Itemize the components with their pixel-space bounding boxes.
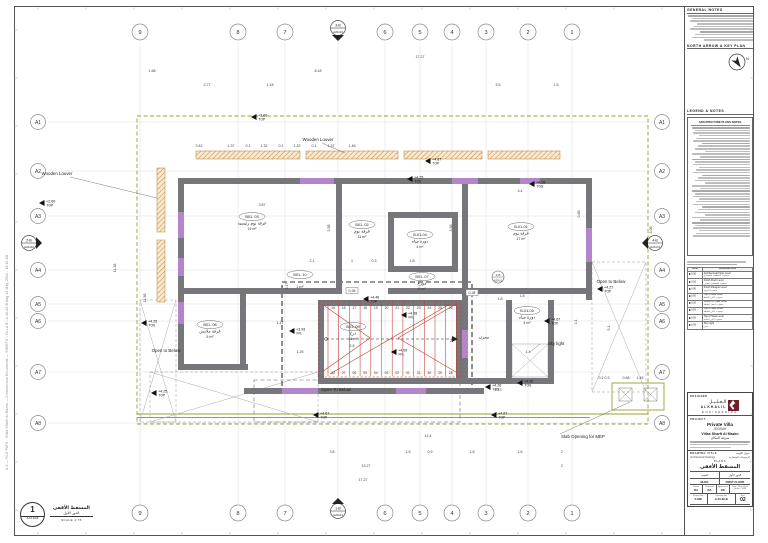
room-id: B01- 07 (415, 275, 428, 279)
wall (388, 212, 458, 218)
level-flag-icon (401, 312, 407, 318)
stair-step-number: 12 (331, 371, 335, 375)
text-line (696, 233, 749, 235)
dimension-label: 1.68 (149, 69, 156, 73)
section-marker-arrow (642, 237, 648, 249)
dimension-label: 3.1 (574, 320, 578, 325)
stair-step-number: 22 (406, 306, 410, 310)
dimension-label: 1.8 (520, 294, 525, 298)
designer-label: DESIGNER (690, 395, 708, 398)
text-line (693, 227, 750, 229)
stair-step-number: 25 (438, 306, 442, 310)
grid-bubble-label: A6 (35, 319, 41, 325)
view-ref: A-10-02-B (21, 516, 44, 521)
wall-accent (178, 212, 184, 238)
text-line (700, 31, 753, 33)
dimension-label: 3.38 (449, 225, 453, 232)
grid-bubble-label: A4 (659, 268, 665, 274)
drawing-title-arabic: المسقط الأفقي (690, 464, 750, 470)
stair-step-number: 31 (417, 371, 421, 375)
reference-tag-top: 1-B (496, 273, 501, 277)
section-marker-ref: A20-01 (333, 513, 343, 517)
text-line (696, 169, 749, 171)
room-name-ar: غرفة ملابس (199, 328, 221, 333)
wooden-louver-hatch (157, 240, 165, 302)
room-id: B01- 08 (203, 323, 216, 327)
dimension-label: 1.37 (228, 144, 235, 148)
grid-bubble-label: 1 (570, 511, 573, 517)
dimension-label: 1.18 (267, 83, 274, 87)
text-line (692, 217, 749, 219)
grid-bubble-label: 7 (283, 30, 286, 36)
text-line (693, 196, 750, 198)
room-area: 11 m² (358, 235, 368, 239)
floor-cell-ar: الدور الأول (720, 472, 750, 479)
grid-bubble-label: A1 (35, 120, 41, 126)
level-flag-icon (391, 349, 397, 355)
room-name-ar: مخزن (479, 334, 489, 339)
dimension-label: 0.88 (577, 211, 581, 218)
grid-bubble-label: A4 (35, 268, 41, 274)
view-scale: SCALE 1:75 (50, 518, 93, 522)
level-flag-icon (689, 324, 691, 326)
dimension-label: 17.27 (359, 478, 368, 482)
wall-accent (396, 388, 426, 394)
grid-bubble-label: 5 (418, 511, 421, 517)
level-suffix: TOP (499, 416, 507, 420)
text-line (705, 151, 749, 153)
stair-step-number: 21 (395, 306, 399, 310)
north-arrow-title: NORTH ARROW & KEY PLAN (687, 44, 753, 50)
grid-bubble-label: 6 (383, 511, 386, 517)
dimension-label: 1.32 (294, 144, 301, 148)
dimension-label: 2 (561, 450, 563, 454)
legend-row: 0.00Top of Steel Levelمنسوب أعلى الحديد (688, 315, 753, 322)
dimension-label: 12.4 (425, 434, 432, 438)
wooden-louver-hatch (404, 151, 482, 159)
wall-accent (178, 258, 184, 276)
view-subtitle-arabic: الدور الأول (53, 511, 90, 515)
text-line (695, 193, 749, 195)
dimension-label: 17.27 (416, 55, 425, 59)
stair-step-number: 29 (438, 371, 442, 375)
drawing-title-block: DRAWING TITLE عنوان اللوحة Architectural… (688, 451, 752, 505)
dimension-label: 1.8 (410, 259, 415, 263)
text-line (693, 132, 750, 134)
room-id: B01- 09 (346, 325, 359, 329)
drawing-category-ar: الرسومات المعمارية (729, 456, 750, 459)
legend-row: 0.00Finish Parapet Levelمنسوب الدروة (688, 286, 753, 293)
text-line (693, 140, 749, 142)
level-suffix: TOP (605, 290, 613, 294)
dimension-label: 8.18 (315, 69, 322, 73)
level-flag-icon (597, 286, 603, 292)
drawing-no-value: A-10-02-B (715, 497, 728, 501)
level-suffix: TOS (525, 384, 533, 388)
grid-bubble-label: A5 (35, 302, 41, 308)
open-below-right-label: Open to Below (597, 279, 627, 284)
dimension-label: 2.1 (310, 259, 315, 263)
logo-text: ALKHALIL (701, 405, 727, 409)
dimension-label: 0.1 (312, 144, 317, 148)
wall-accent (178, 302, 184, 324)
stair-step-number: 04 (374, 371, 378, 375)
level-suffix: TOP (47, 204, 55, 208)
view-title: 1 A-10-02-B المسقط الأفقي الدور الأول SC… (20, 497, 170, 531)
dimension-label: 2.8 (350, 344, 355, 348)
grid-bubble-label: 3 (484, 30, 487, 36)
stair-step-number: 07 (342, 371, 346, 375)
svg-text:N: N (746, 56, 749, 61)
dimension-label: 11.38 (113, 264, 117, 273)
project-block: PROJECT Private Villa JEDDAH Villas Shar… (688, 416, 752, 451)
wall (388, 266, 458, 272)
level-symbols-table: SYM.DESCRIPTION0.00Architectural Floor L… (687, 267, 753, 330)
level-suffix: TOP (159, 394, 167, 398)
legend-row: 0.00Top of Wall Levelمنسوب أعلى الحائط (688, 293, 753, 300)
stair-step-number: 18 (363, 306, 367, 310)
level-suffix: TOS (149, 324, 157, 328)
wooden-louver-hatch (196, 151, 300, 159)
stair-step-number: 24 (427, 306, 431, 310)
text-line (698, 145, 750, 147)
text-line (696, 138, 749, 140)
room-area: 5 m² (418, 287, 426, 291)
room-id: B-01-04 (413, 233, 427, 237)
level-suffix: TOP (552, 322, 560, 326)
grid-bubble-label: A3 (35, 214, 41, 220)
room-name-ar: غرفة نوم (354, 228, 371, 233)
dimension-label: 1.6 (518, 450, 523, 454)
dimension-label: 1.47 (277, 321, 284, 325)
room-area: 16 m² (348, 337, 358, 341)
drawing-title-label-ar: عنوان اللوحة (736, 452, 750, 455)
dimension-label: 11.38 (143, 294, 147, 303)
stair-step-number: 27 (450, 339, 454, 343)
alkhalil-logo-icon (728, 400, 739, 411)
level-flag-icon (39, 200, 45, 206)
grid-bubble-label: 5 (418, 30, 421, 36)
stair-step-number: 03 (385, 371, 389, 375)
wall (506, 300, 512, 384)
general-notes-title: GENERAL NOTES (687, 8, 753, 14)
level-flag-icon (689, 281, 691, 283)
level-flag-icon (689, 295, 691, 297)
text-line (693, 235, 749, 237)
text-line (693, 172, 749, 174)
open-below-bottom-label: Open To Below (321, 387, 352, 392)
grid-bubble-label: 9 (138, 30, 141, 36)
drawing-sheet: A-2 — FILE PATH : Villas Sharft Al Mazkn… (0, 0, 768, 543)
dimension-label: 13.27 (362, 464, 371, 468)
level-flag-icon (689, 309, 691, 311)
project-no-value: F-830 (695, 497, 702, 501)
text-line (700, 219, 750, 221)
room-area: 19 m² (247, 227, 257, 231)
level-flag-icon (151, 390, 157, 396)
text-line (702, 175, 749, 177)
stair-step-number: 06 (353, 371, 357, 375)
text-line (702, 206, 749, 208)
stair-step-number: 19 (374, 306, 378, 310)
drawn-value: DA (694, 488, 698, 492)
legend-row: 0.00Sky Lightمنور (688, 322, 753, 329)
level-suffix: TOP (321, 416, 329, 420)
plan-notes-title: ARCHITECTURE PLANS NOTES (691, 120, 750, 126)
dimension-label: 1.32 (261, 144, 268, 148)
stair-step-number: 23 (417, 306, 421, 310)
dimension-label: 3.42 (196, 144, 203, 148)
leader-line (70, 177, 157, 198)
level-suffix: TOP (433, 162, 441, 166)
wall (452, 212, 458, 272)
drawing-category-en: Architectural Drawings (690, 456, 715, 459)
text-line (692, 153, 749, 155)
wall-accent (586, 228, 592, 262)
view-number: 1 (30, 503, 34, 516)
room-area: 1 m² (296, 285, 304, 289)
room-area: 17 m² (516, 237, 526, 241)
slab-opening-box (612, 383, 664, 410)
dimension-label: 3.8 (330, 450, 335, 454)
section-marker-ref: A20-04 (650, 245, 660, 249)
wall-accent (452, 178, 478, 184)
slab-mep-label: Slab Opening for MEP (561, 434, 605, 439)
grid-bubble-label: A8 (35, 421, 41, 427)
text-line (702, 143, 749, 145)
wooden-louver-hatch (306, 151, 398, 159)
scale-value: 1:75 (741, 488, 745, 490)
dimension-label: 0.1 (246, 144, 251, 148)
bldg-cell: BLDG (690, 479, 720, 486)
drawing-series: PLANS (690, 459, 750, 463)
text-line (697, 23, 753, 25)
room-name-ar: درج (350, 330, 357, 335)
wall-accent (300, 178, 334, 184)
room-name-ar: دورة مياه (412, 238, 428, 243)
section-marker-arrow (332, 35, 344, 41)
open-below-left-label: Open to Below (152, 348, 182, 353)
grid-bubble-label: 2 (526, 30, 529, 36)
project-line2-ar: شرفة المكان (690, 436, 750, 440)
text-line (695, 225, 749, 227)
wall (336, 184, 342, 288)
dimension-label: 0.3 (372, 259, 377, 263)
text-line (692, 18, 753, 20)
wall (462, 184, 468, 288)
north-arrow-icon: N (727, 51, 749, 73)
stair-step-number: 20 (385, 306, 389, 310)
grid-bubble-label: A5 (659, 302, 665, 308)
dimension-label: 4.73 (495, 388, 502, 392)
room-id: B01- 03 (245, 215, 258, 219)
text-line (695, 34, 753, 36)
dimension-label: 3.87 (259, 203, 266, 207)
level-suffix: TOP (371, 300, 379, 304)
text-line (695, 148, 750, 150)
grid-bubble-label: A7 (659, 370, 665, 376)
reference-tag-ref: A30-01 (494, 278, 503, 282)
title-block: DESIGNER الـخـلـيـل ALKHALIL ENGINEERING… (687, 392, 753, 507)
leader-line (530, 344, 540, 352)
general-notes-text (687, 15, 753, 41)
text-line (692, 222, 750, 224)
section-marker-name: 1-B (335, 507, 341, 511)
level-suffix: TOP (259, 118, 267, 122)
text-line (690, 28, 753, 30)
text-line (699, 135, 749, 137)
level-flag-icon (544, 318, 550, 324)
level-flag-icon (689, 317, 691, 319)
north-arrow: N (687, 51, 753, 73)
text-line (695, 212, 750, 214)
section-marker-name: 2-B (26, 239, 32, 243)
level-suffix: FFL (399, 353, 405, 357)
plan-notes-text (691, 127, 750, 237)
wooden-louver-top-label: Wooden Louver (303, 137, 334, 142)
text-line (695, 180, 750, 182)
wall (388, 212, 394, 272)
grid-bubble-label: 6 (383, 30, 386, 36)
dimension-label: 1.5 (554, 83, 559, 87)
level-flag-icon (689, 288, 691, 290)
grid-bubble-label: 7 (283, 511, 286, 517)
door-tag: D-06 (349, 289, 356, 293)
wooden-louver-hatch (157, 168, 165, 232)
dimension-label: 1.25 (297, 350, 304, 354)
checked-value: DA (707, 488, 711, 492)
wall (462, 378, 554, 384)
section-marker-name: 4-B (652, 239, 658, 243)
legend-table-wrap: SYM.DESCRIPTION0.00Architectural Floor L… (687, 260, 753, 330)
legend-row: 0.00Finish Floor Levelمنسوب التشطيب النه… (688, 279, 753, 286)
dimension-label: 3.77 (204, 83, 211, 87)
level-suffix: TOS (537, 185, 545, 189)
dimension-label: 1.46 (349, 144, 356, 148)
level-flag-icon (689, 273, 691, 275)
dimension-label: 1.8 (498, 297, 503, 301)
legend-row: 0.00Top of Slab Levelمنسوب أعلى البلاطة (688, 308, 753, 315)
text-line (692, 185, 749, 187)
grid-bubble-label: 8 (236, 511, 239, 517)
grid-bubble-label: 3 (484, 511, 487, 517)
wall (184, 288, 342, 294)
stair-step-number: 17 (353, 306, 357, 310)
text-line (700, 156, 750, 158)
room-id: B-01-05 (520, 309, 534, 313)
stair-step-number: 16 (342, 306, 346, 310)
wall (240, 294, 246, 370)
bldg-cell-ar: المبنى (690, 472, 720, 479)
text-line (692, 37, 753, 39)
room-name-ar: دورة مياه (519, 314, 535, 319)
text-line (704, 39, 754, 41)
dimension-label: 0.68 (623, 376, 630, 380)
sidebar-panel: GENERAL NOTES NORTH ARROW & KEY PLAN N L… (687, 8, 753, 535)
section-marker-ref: A20-03 (333, 30, 343, 34)
floor-cell: FIRST FLOOR (720, 479, 750, 486)
wall (178, 364, 248, 370)
stair-step-number: 28 (449, 371, 453, 375)
stair-step-number: 30 (427, 371, 431, 375)
dimension-label: 3.4 (518, 189, 523, 193)
room-id: B01- 10 (293, 273, 306, 277)
section-marker-name: 3-B (335, 24, 341, 28)
text-line (693, 164, 750, 166)
text-line (688, 15, 753, 17)
text-line (696, 201, 749, 203)
dimension-label: 3.58 (327, 225, 331, 232)
room-id: B01- 02 (355, 223, 368, 227)
floor-plan-canvas: 1516171819202122232425261207060504030201… (0, 0, 768, 543)
text-line (694, 26, 753, 28)
dimension-label: 1.4 (526, 350, 531, 354)
level-suffix: TOS (415, 180, 423, 184)
project-label: PROJECT (690, 418, 706, 421)
text-line (705, 214, 749, 216)
room-name-ar: موزع (418, 280, 427, 285)
grid-bubble-label: 8 (236, 30, 239, 36)
text-line (699, 198, 749, 200)
level-flag-icon (289, 328, 295, 334)
grid-bubble-label: A2 (35, 169, 41, 175)
approved-value: HK (721, 488, 725, 492)
text-line (700, 188, 750, 190)
dimension-label: 0.9 (428, 450, 433, 454)
text-line (695, 130, 749, 132)
text-line (692, 127, 750, 129)
room-area: 4 m² (523, 321, 531, 325)
stair-step-number: 01 (406, 371, 410, 375)
text-line (699, 167, 749, 169)
level-flag-icon (251, 114, 257, 120)
dimension-label: 3.08 (649, 227, 653, 234)
text-line (705, 182, 749, 184)
dimension-label: 3.5 (496, 83, 501, 87)
grid-bubble-label: A6 (659, 319, 665, 325)
door-tag: D-08 (469, 291, 476, 295)
text-line (695, 161, 749, 163)
wall (318, 378, 462, 384)
room-id: B-01-01 (514, 225, 528, 229)
dimension-label: 1.45 (637, 376, 644, 380)
drawing-title-label: DRAWING TITLE (690, 452, 717, 455)
dimension-label: 0.2 0.3 (599, 376, 610, 380)
dimension-label: 2 (561, 464, 563, 468)
logo-subtitle: ENGINEERING (690, 411, 750, 414)
legend-notes-title: LEGEND & NOTES (687, 109, 753, 115)
level-suffix: FFL (297, 332, 303, 336)
text-line (693, 204, 749, 206)
dimension-label: 1.5 (406, 450, 411, 454)
stair-step-number: 05 (363, 371, 367, 375)
grid-bubble-label: A8 (659, 421, 665, 427)
text-line (698, 177, 750, 179)
grid-bubble-label: A7 (35, 370, 41, 376)
section-marker-arrow (332, 498, 344, 504)
section-marker-ref: A20-02 (24, 245, 34, 249)
room-name-ar: غرفة نوم رئيسية (238, 220, 268, 225)
wall (178, 184, 184, 370)
rev-value: 02 (740, 497, 746, 503)
section-marker-arrow (36, 237, 42, 249)
dimension-label: 3.17 (285, 283, 289, 290)
plan-notes-box: ARCHITECTURE PLANS NOTES (687, 117, 753, 256)
room-area: 4 m² (416, 245, 424, 249)
dimension-label: 1.8 (470, 450, 475, 454)
designer-block: DESIGNER الـخـلـيـل ALKHALIL ENGINEERING (688, 393, 752, 416)
legend-row: 0.00Architectural Floor Levelمنسوب التشط… (688, 272, 753, 279)
